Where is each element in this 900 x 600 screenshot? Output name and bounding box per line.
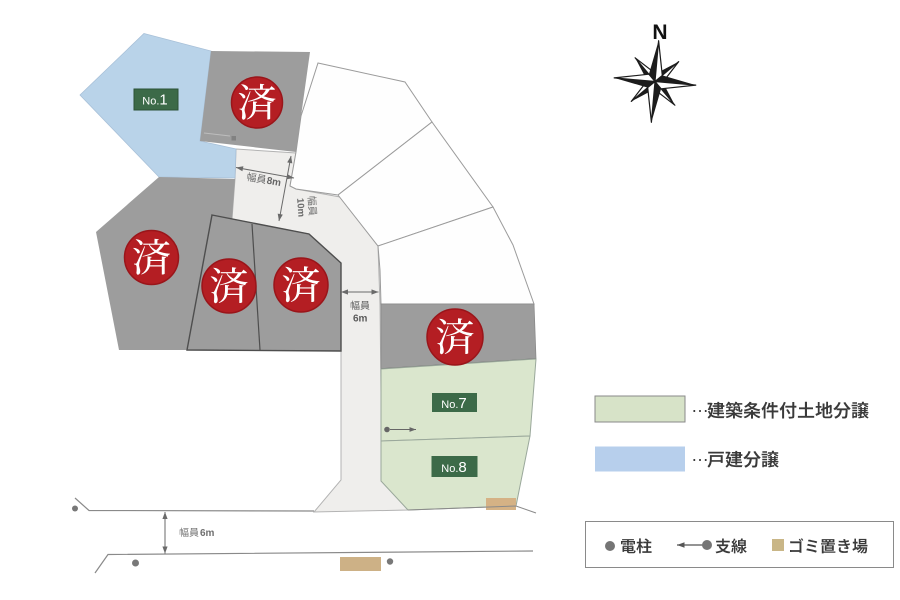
svg-text:N: N [652,21,667,44]
svg-text:…: … [691,445,709,465]
svg-text:6m: 6m [353,314,368,325]
svg-text:10m: 10m [294,198,306,218]
svg-text:6m: 6m [200,528,215,539]
svg-text:…: … [691,396,709,416]
